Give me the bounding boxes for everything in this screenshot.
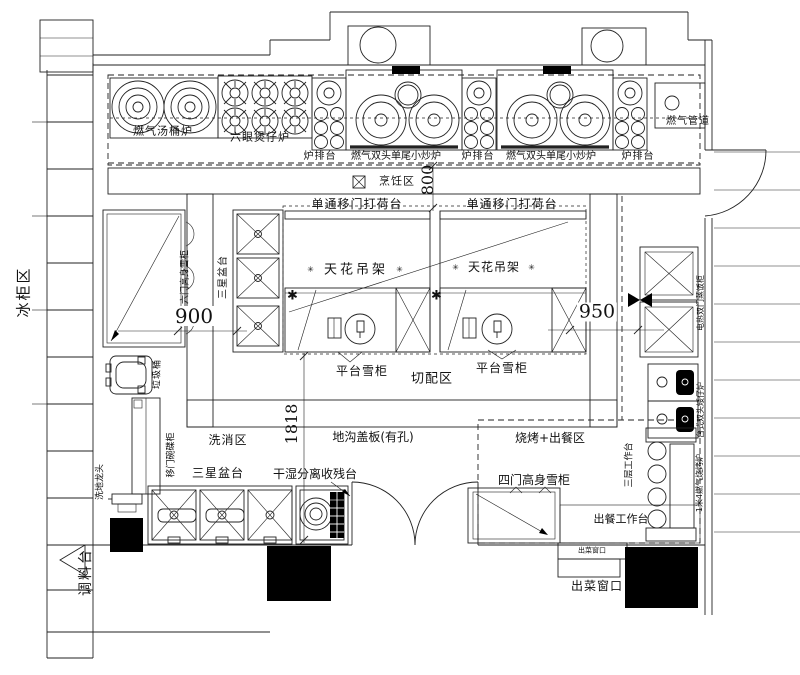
twin-low-stove [648, 364, 698, 438]
right-wall-and-stairs [705, 40, 800, 615]
bottom-triple-sink [148, 486, 292, 544]
trash-bin-label: 垃圾桶 [154, 359, 163, 389]
pass-counter-left-label: 单通移门打荷台 [311, 198, 402, 210]
dim-900: 900 [173, 306, 215, 326]
rice-steamer-cabinet [628, 247, 698, 357]
sliding-dish-cabinet [132, 398, 160, 494]
cooking-zone-label: 烹饪区 [377, 176, 417, 187]
rice-steamer-label: 电热双门蒸饭柜 [697, 275, 705, 331]
floor-tap-label: 洗地龙头 [97, 464, 106, 500]
stove-stand-2-label: 炉排台 [462, 152, 495, 162]
platform-fridge-left-label: 平台雪柜 [336, 365, 388, 377]
bbq-serving-zone-label: 烧烤+出餐区 [515, 432, 585, 444]
stove-stand-2 [462, 78, 496, 150]
floor-grating [108, 168, 700, 427]
pass-counter-right-label: 单通移门打荷台 [466, 198, 557, 210]
wok-stove-2-label: 燃气双头单尾小炒炉 [506, 152, 596, 162]
low-stove-label: 台式双头矮仔炉 [697, 382, 705, 438]
deco-star-4: ✳ [528, 264, 536, 272]
dim-800: 800 [420, 165, 436, 196]
four-door-freezer-label: 四门高身雪柜 [498, 474, 570, 486]
ceiling-rack-left-label: 天花吊架 [324, 264, 388, 277]
double-swing-door [352, 482, 478, 545]
exhaust-risers [348, 26, 646, 65]
claypot-stove-label: 六眼煲仔炉 [230, 132, 290, 143]
serving-window-label: 出菜窗口 [571, 580, 623, 592]
seasoning-zone-label: 调料台 [79, 548, 93, 596]
wash-zone-label: 洗消区 [208, 434, 247, 446]
cutting-zone-label: 切配区 [411, 373, 453, 386]
serving-window-small-label: 出菜窗口 [578, 548, 606, 555]
deco-star-3: ✳ [452, 264, 460, 272]
bottom-star-sink-label: 三星盆台 [192, 467, 244, 479]
dim-950: 950 [577, 303, 617, 322]
four-door-tall-freezer [468, 487, 560, 543]
wok-stove-1-label: 燃气双头单尾小炒炉 [351, 152, 441, 162]
deco-star-2: ✳ [396, 266, 404, 274]
waste-table-label: 干湿分离收残台 [273, 468, 357, 480]
serving-table-label: 出餐工作台 [594, 514, 649, 525]
island [233, 206, 586, 362]
wok-stove-2 [497, 66, 613, 150]
gas-bbq-grill [646, 428, 696, 541]
six-door-freezer-label: 六门高身雪柜 [182, 250, 191, 304]
platform-fridge-right-label: 平台雪柜 [476, 362, 528, 374]
island-star-sink-label: 三星盆台 [219, 255, 229, 299]
dish-cabinet-label: 移门碗碟柜 [168, 432, 177, 477]
gas-pipe-label: 燃气管道 [666, 117, 710, 127]
plan-linework [0, 0, 800, 675]
stove-stand-1-label: 炉排台 [304, 152, 337, 162]
kitchen-floor-plan: 燃气汤桶炉 六眼煲仔炉 炉排台 燃气双头单尾小炒炉 炉排台 燃气双头单尾小炒炉 … [0, 0, 800, 675]
deco-star-1: ✳ [307, 266, 315, 274]
trash-bin [106, 356, 152, 394]
soup-stove-label: 燃气汤桶炉 [133, 126, 193, 137]
bold-star-2: ✱ [431, 290, 443, 303]
three-tier-table-label: 三层工作台 [626, 442, 635, 487]
dim-1818: 1818 [284, 404, 300, 445]
floor-tap-symbol [108, 494, 142, 512]
stove-stand-3-label: 炉排台 [622, 152, 655, 162]
ceiling-rack-right-label: 天花吊架 [468, 261, 520, 273]
freezer-zone-label: 冰柜区 [17, 266, 32, 317]
wok-stove-1 [346, 66, 462, 150]
solid-wall-blocks [110, 518, 698, 608]
stove-stand-3 [613, 78, 647, 150]
bbq-grill-label: 1米4燃气烧烤炉 [696, 454, 704, 512]
drain-cover-label: 地沟盖板(有孔) [332, 431, 413, 443]
bold-star-1: ✱ [287, 290, 299, 303]
stove-stand-1 [312, 78, 346, 150]
six-eye-claypot-stove [218, 76, 312, 138]
